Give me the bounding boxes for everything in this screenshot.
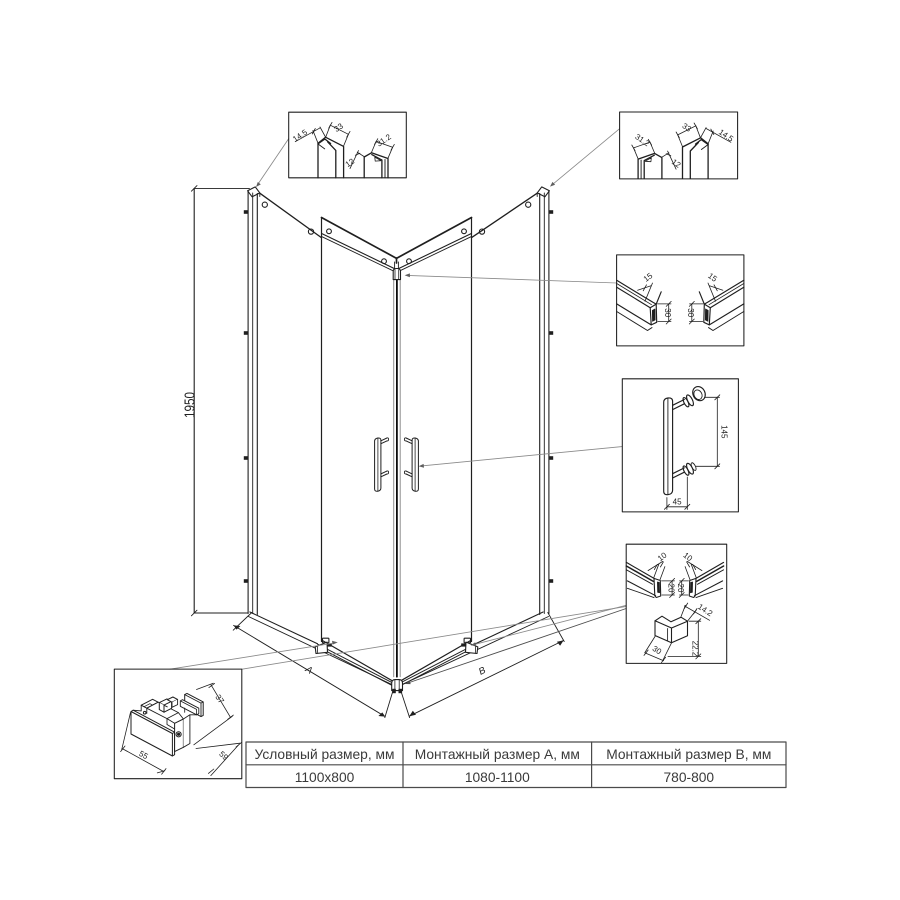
svg-text:45: 45 [673, 497, 682, 506]
svg-text:145: 145 [720, 425, 729, 439]
svg-text:Монтажный размер А, мм: Монтажный размер А, мм [415, 747, 580, 762]
svg-text:1950: 1950 [182, 392, 198, 418]
svg-text:Монтажный размер В, мм: Монтажный размер В, мм [606, 747, 771, 762]
svg-text:22.2: 22.2 [690, 641, 699, 657]
svg-text:1080-1100: 1080-1100 [465, 770, 530, 785]
svg-text:30: 30 [663, 308, 672, 317]
svg-text:30: 30 [686, 308, 695, 317]
svg-text:1100x800: 1100x800 [295, 770, 355, 785]
svg-text:20: 20 [666, 584, 675, 593]
svg-text:780-800: 780-800 [663, 770, 714, 785]
svg-text:20: 20 [676, 584, 685, 593]
svg-text:Условный размер, мм: Условный размер, мм [254, 747, 394, 762]
